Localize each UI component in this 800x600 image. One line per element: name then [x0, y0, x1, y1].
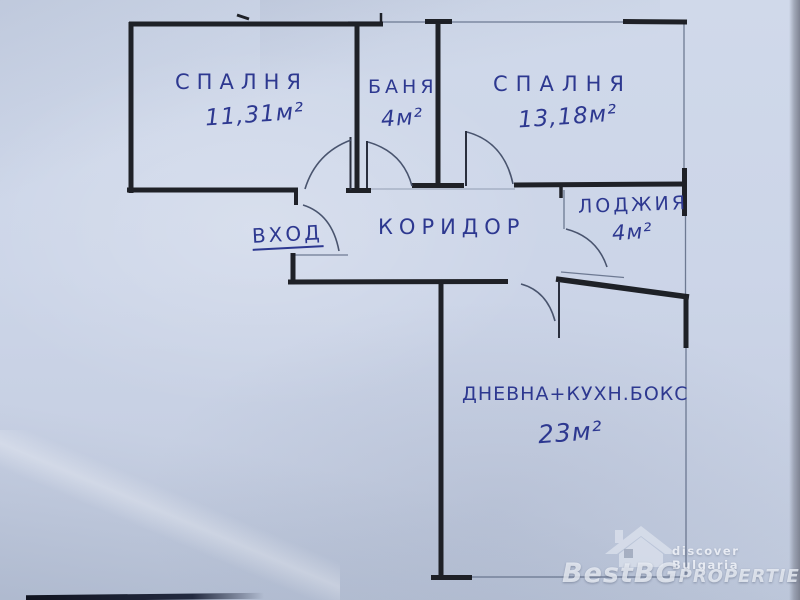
house-window [624, 549, 633, 558]
wall-corridor-bottom [288, 282, 508, 283]
door-arc-loggia [566, 229, 607, 267]
stray-mark [237, 15, 249, 19]
label-loggia-name: ЛОДЖИЯ [578, 192, 689, 218]
label-bedroom2-name: СПАЛНЯ [493, 72, 632, 96]
door-arc-bedroom2 [467, 132, 513, 184]
watermark-brand: BestBGProperties [562, 558, 800, 589]
door-arc-bedroom1 [305, 140, 351, 189]
label-bedroom1-name: СПАЛНЯ [175, 70, 308, 94]
label-living-name: ДНЕВНА+КУХН.БОКС [462, 383, 689, 405]
watermark-brand-bg: BG [634, 558, 679, 589]
house-chimney [615, 530, 623, 543]
label-corridor: КОРИДОР [378, 215, 525, 239]
pencil-lines [291, 22, 687, 577]
wall-loggia-living-diagonal [556, 279, 689, 297]
wall-top-right [623, 22, 687, 23]
label-living-area: 23м² [537, 416, 604, 449]
label-entrance: ВХОД [251, 220, 323, 251]
label-bathroom-name: БАНЯ [368, 76, 438, 98]
floor-plan-photo: СПАЛНЯ 11,31м² БАНЯ 4м² СПАЛНЯ 13,18м² Л… [0, 0, 800, 600]
label-loggia-area: 4м² [611, 219, 653, 246]
watermark-brand-best: Best [562, 558, 634, 589]
door-arc-bathroom [368, 142, 412, 186]
wall-bedroom2-bottom [514, 184, 686, 185]
pencil-loggia-guide [561, 272, 624, 278]
watermark-brand-properties: Properties [679, 566, 800, 587]
door-arc-living [521, 284, 555, 321]
label-bathroom-area: 4м² [380, 105, 424, 133]
